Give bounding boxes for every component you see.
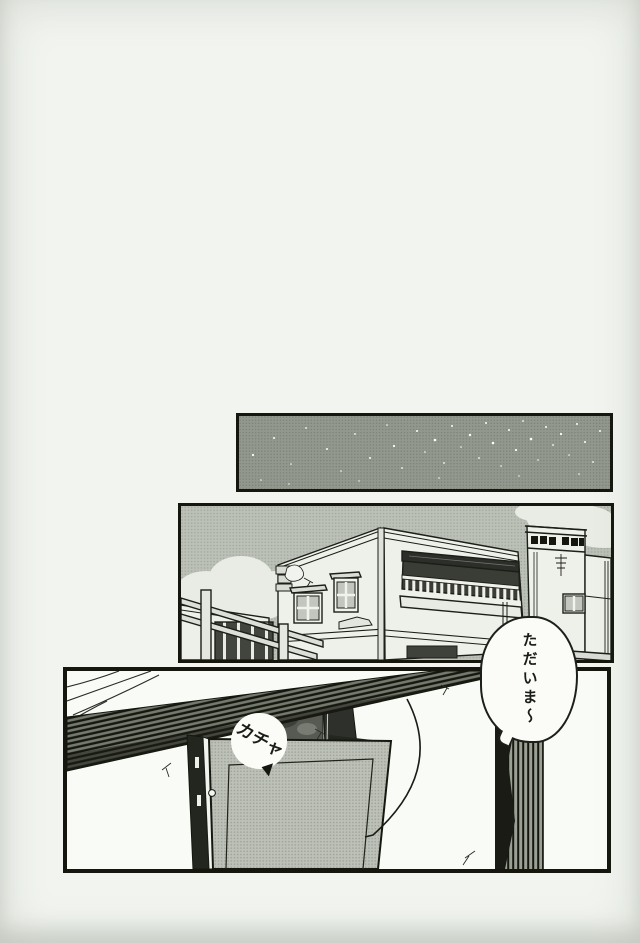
manga-page: カチャ ただいま〜: [0, 0, 640, 943]
door-knob: [209, 790, 216, 797]
sfx-text: カチャ: [232, 722, 285, 760]
sfx-bubble: カチャ: [231, 713, 287, 769]
front-door: [203, 737, 391, 869]
night-sky-illustration: [239, 416, 610, 489]
speech-bubble-text: ただいま〜: [522, 632, 537, 727]
panel-night-sky: [236, 413, 613, 492]
speech-bubble: ただいま〜: [480, 616, 578, 743]
